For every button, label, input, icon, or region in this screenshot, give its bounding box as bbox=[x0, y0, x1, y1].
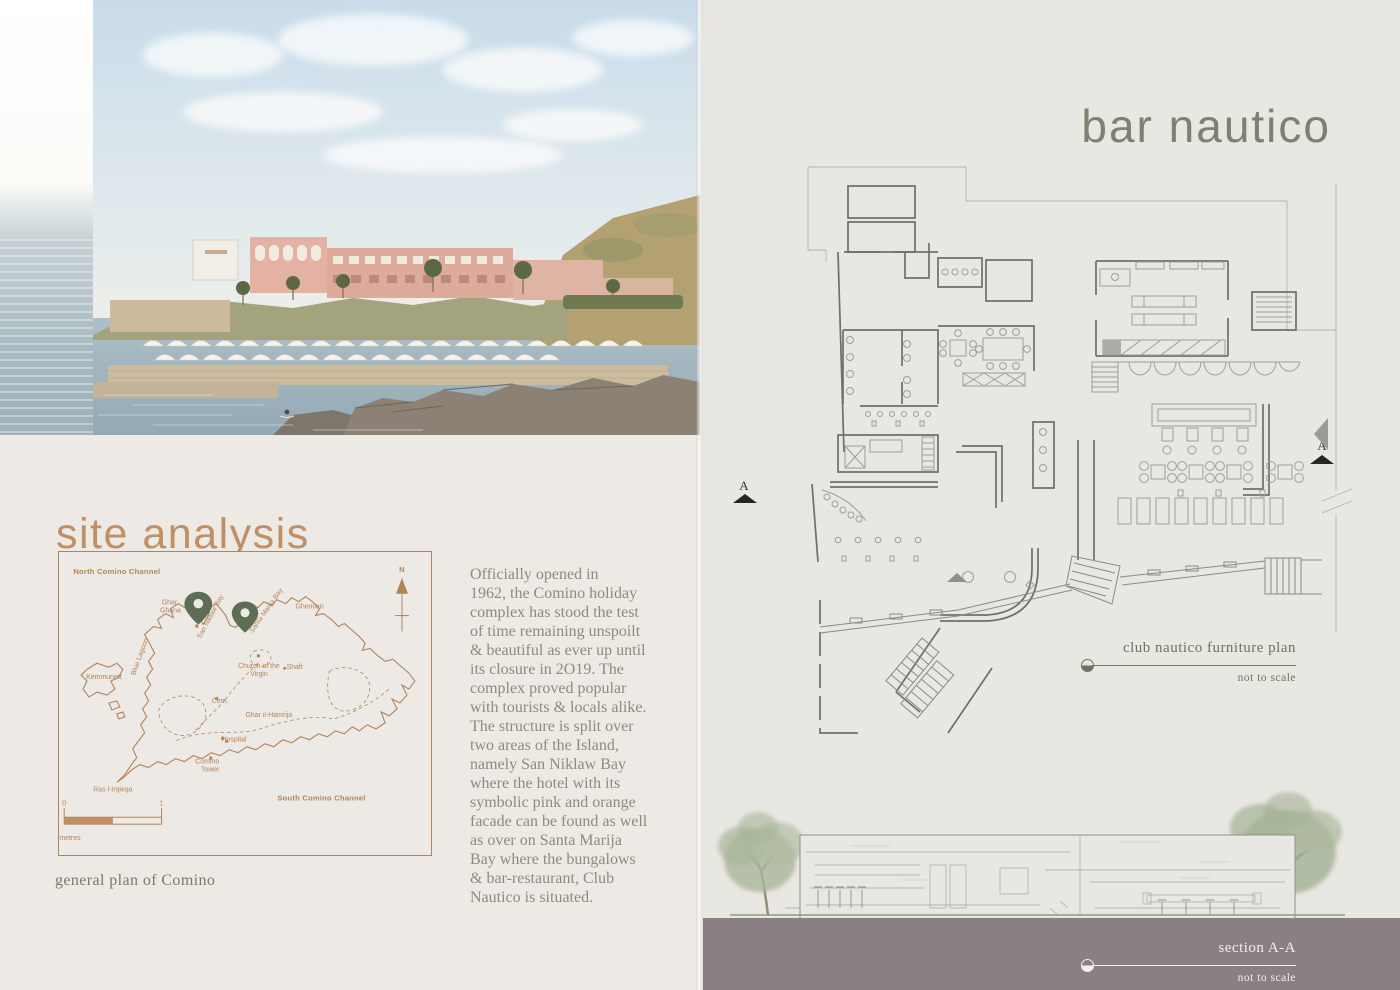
building-mass bbox=[800, 835, 1295, 918]
map-label: Ghemieri bbox=[295, 604, 324, 611]
map-label: Ghar il-Hamrija bbox=[246, 712, 293, 719]
sun-loungers bbox=[1118, 498, 1283, 524]
map-label: Ras l-Irqieqa bbox=[93, 786, 132, 793]
caption-rule bbox=[1092, 965, 1296, 966]
map-label: Church of the bbox=[238, 663, 280, 670]
map-label: South Comino Channel bbox=[277, 793, 365, 802]
outdoor-paths bbox=[820, 556, 1322, 633]
left-page: site analysis bbox=[0, 0, 700, 990]
section-caption: section A-A not to scale bbox=[1081, 940, 1296, 984]
svg-text:0: 0 bbox=[62, 800, 66, 807]
svg-text:N: N bbox=[399, 565, 405, 574]
map-labels: North Comino ChannelSouth Comino Channel… bbox=[73, 567, 365, 803]
kitchen-fittings bbox=[1100, 262, 1292, 355]
map-label: Blue Lagoon bbox=[130, 637, 150, 676]
colonnade bbox=[1096, 362, 1300, 375]
tree-left bbox=[718, 812, 804, 915]
plan-caption-title: club nautico furniture plan bbox=[1081, 640, 1296, 657]
map-label: Virgin bbox=[250, 671, 268, 678]
section-marker-a-left: A bbox=[733, 478, 757, 503]
map-label: Tower bbox=[201, 767, 220, 774]
map-caption: general plan of Comino bbox=[55, 872, 215, 890]
section-arrow-icon bbox=[1310, 455, 1334, 464]
comino-hotel-photo bbox=[93, 0, 700, 435]
map-label: Ghana bbox=[160, 608, 181, 615]
section-caption-title: section A-A bbox=[1081, 940, 1296, 957]
map-label: Ghar bbox=[162, 600, 178, 607]
bar-counter bbox=[1152, 404, 1256, 454]
section-arrow-icon bbox=[733, 494, 757, 503]
north-arrow-icon bbox=[947, 573, 967, 582]
sea-photo-strip bbox=[0, 0, 93, 435]
plan-caption: club nautico furniture plan not to scale bbox=[1081, 640, 1296, 684]
body-paragraph: Officially opened in 1962, the Comino ho… bbox=[470, 565, 720, 907]
outdoor-stairs bbox=[881, 638, 959, 718]
terrace-tables bbox=[1140, 462, 1304, 496]
map-label: Kemmunett bbox=[86, 674, 122, 681]
comino-hotel-photo-art bbox=[93, 0, 700, 435]
site-boundary bbox=[808, 167, 1352, 633]
wc-fixtures bbox=[847, 269, 1047, 472]
svg-text:1: 1 bbox=[160, 800, 164, 807]
plan-caption-subtitle: not to scale bbox=[1081, 672, 1296, 684]
svg-text:A: A bbox=[739, 478, 749, 493]
map-label: Comino bbox=[195, 759, 219, 766]
site-analysis-title: site analysis bbox=[56, 513, 310, 556]
map-label: North Comino Channel bbox=[73, 567, 160, 576]
compass-icon: N bbox=[395, 565, 409, 632]
map-label: Hospital bbox=[222, 737, 248, 744]
swimmer bbox=[285, 410, 290, 415]
comino-map: N 0 1 Kilometres North Comino ChannelSou… bbox=[58, 551, 432, 856]
caption-rule bbox=[1092, 665, 1296, 666]
svg-text:Kilometres: Kilometres bbox=[59, 835, 81, 842]
map-label: Cem. bbox=[212, 698, 229, 705]
scale-bar: 0 1 Kilometres bbox=[59, 800, 164, 842]
section-caption-subtitle: not to scale bbox=[1081, 972, 1296, 984]
dining-tables bbox=[940, 329, 1031, 386]
map-label: Shaft bbox=[287, 664, 303, 671]
